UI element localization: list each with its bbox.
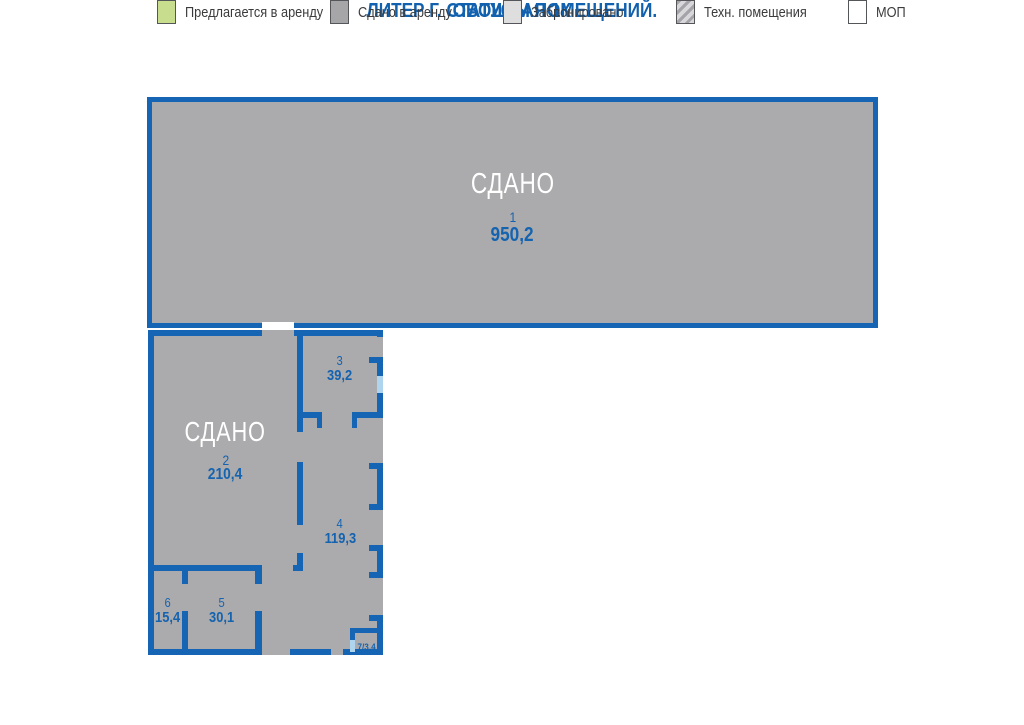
door-jamb [317,412,322,428]
room-1-status-text: СДАНО [470,169,554,201]
room-5-area: 30,1 [188,609,255,627]
room-1-status-label: СДАНО [147,169,878,201]
room-4-area: 119,3 [303,530,377,548]
room-5-area-text: 30,1 [209,610,234,627]
legend-label-rented: Сдано в аренду [358,4,468,21]
legend-swatch-rented [330,0,349,24]
legend-label-offered: Предлагается в аренду [185,4,348,21]
wall-segment [377,357,383,376]
room-3-area: 39,2 [303,367,377,385]
window-marker [377,376,383,393]
wall-segment [148,649,262,655]
legend-label-rented-text: Сдано в аренду [358,4,452,21]
legend-label-technical-text: Техн. помещения [704,4,807,21]
legend-item-technical: Техн. помещения [676,0,825,24]
legend-label-common-areas-text: МОП [876,4,906,21]
legend-label-offered-text: Предлагается в аренду [185,4,323,21]
door-jamb [369,615,377,621]
wall-segment [377,330,383,337]
legend-label-booked-text: Забронировано [531,4,623,21]
doorway-room1-room2 [262,322,294,329]
room-7-label-text: 7/3,4 [358,643,376,653]
wall-segment [290,649,331,655]
legend-swatch-offered [157,0,176,24]
door-jamb [369,572,377,578]
room-7-label: 7/3,4 [353,637,381,655]
room-2-status-label: СДАНО [154,417,297,448]
floor-plan-page: ОВОЩНАЯ 1К ЛИТЕР Г. СТАТУСЫ ПОМЕЩЕНИЙ. С… [0,0,1024,725]
room-3-area-text: 39,2 [327,368,352,385]
wall-segment [377,545,383,578]
legend-item-offered: Предлагается в аренду [157,0,348,24]
room-2-area: 210,4 [154,466,297,484]
door-jamb [182,571,188,584]
room-2-area-text: 210,4 [208,466,242,484]
door-jamb [369,504,377,510]
room-6-area-text: 15,4 [155,610,180,627]
wall-segment [294,330,383,336]
legend-item-rented: Сдано в аренду [330,0,468,24]
legend-label-common-areas: МОП [876,4,911,21]
wall-segment [293,565,303,571]
legend-swatch-technical [676,0,695,24]
room-2-status-text: СДАНО [185,417,266,448]
wall-segment [377,463,383,510]
room-4-area-text: 119,3 [324,531,356,548]
wall-segment [148,565,262,571]
door-jamb [255,571,262,584]
door-jamb [352,412,357,428]
legend-item-booked: Забронировано [503,0,640,24]
legend-label-technical: Техн. помещения [704,4,825,21]
legend-item-common-areas: МОП [848,0,911,24]
wall-segment [148,330,262,336]
legend-swatch-booked [503,0,522,24]
legend-label-booked: Забронировано [531,4,640,21]
room-1-area: 950,2 [147,224,878,246]
room-1-area-text: 950,2 [491,224,534,246]
legend-swatch-common-areas [848,0,867,24]
wall-segment [255,611,262,655]
door-jamb [369,463,377,469]
room-6-area: 15,4 [144,609,192,627]
